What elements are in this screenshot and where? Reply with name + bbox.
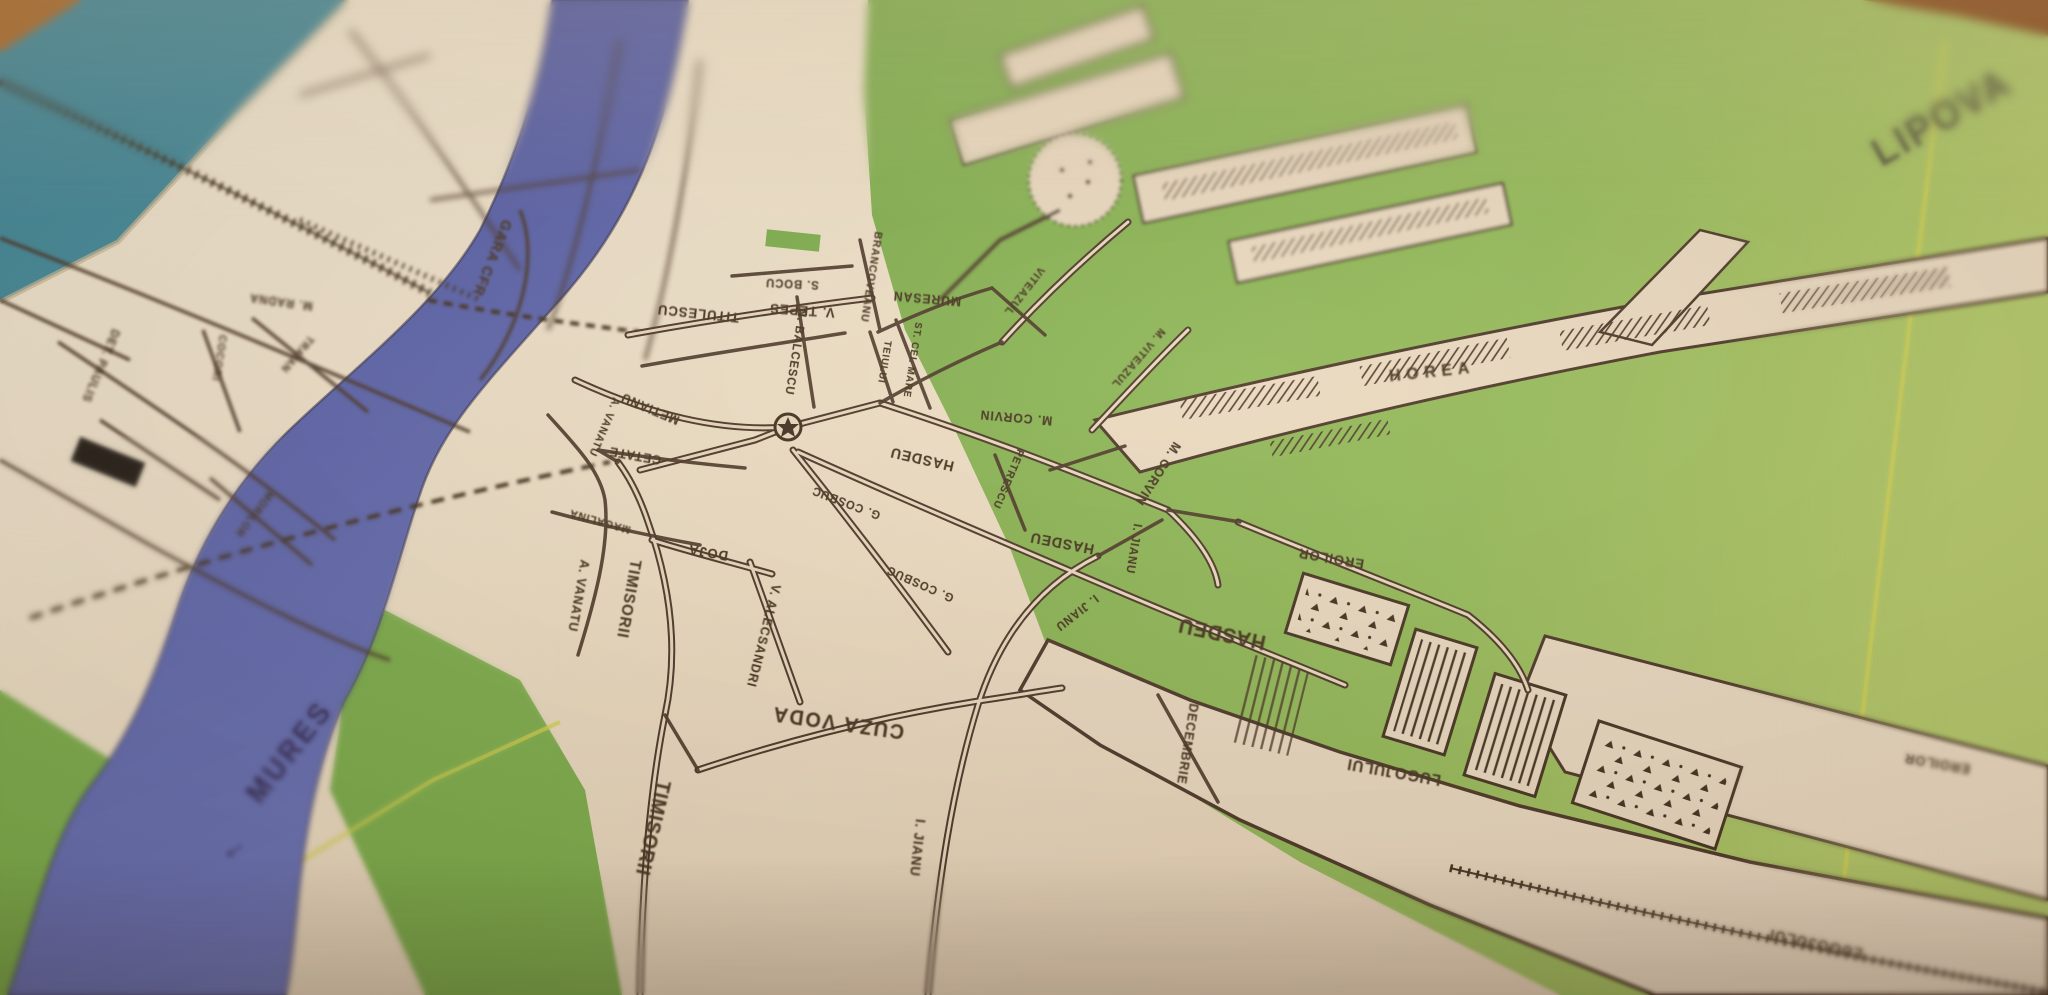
map-photo: LIPOVAMURES←GARA CFRTITULESCUV. TEPESS. …	[0, 0, 2048, 995]
map-artwork	[0, 0, 2048, 995]
town-center-star-marker	[775, 414, 801, 440]
